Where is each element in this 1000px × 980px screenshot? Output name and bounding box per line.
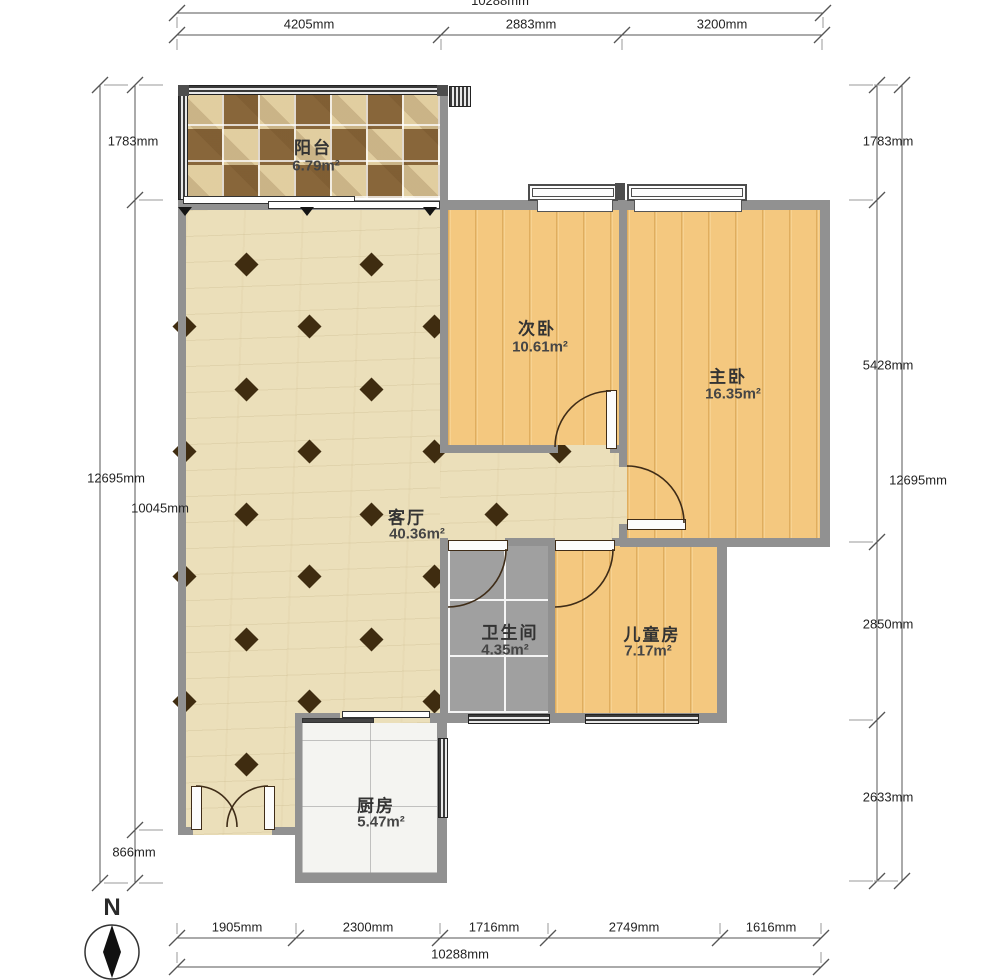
dim-left-seg-1: 1783mm — [108, 134, 159, 149]
second-bedroom-bay-window-inner — [532, 188, 614, 197]
wall-living-secondbed — [440, 200, 448, 453]
wall-secondbed-master-lower — [619, 524, 627, 546]
floor-diamond-accent — [234, 377, 258, 401]
balcony-top-railing-window — [178, 85, 448, 95]
dim-left-total: 12695mm — [87, 471, 145, 486]
slide-marker-right — [423, 207, 437, 216]
dim-left-inner: 10045mm — [131, 501, 189, 516]
kids-room-door-leaf — [555, 540, 615, 551]
dim-bottom-total: 10288mm — [431, 947, 489, 962]
balcony-label: 阳台 — [294, 134, 332, 159]
wall-bathroom-left — [440, 546, 448, 723]
wall-secondbed-master-upper — [619, 200, 627, 467]
entry-door-leaf-right — [264, 786, 275, 830]
dim-bottom-seg-2: 2300mm — [343, 920, 394, 935]
floor-diamond-accent — [484, 502, 508, 526]
wall-kidsroom-right — [717, 546, 727, 723]
living-room-area: 40.36m² — [389, 526, 445, 543]
north-arrow-label: N — [103, 894, 120, 922]
dim-right-seg-3: 2850mm — [863, 617, 914, 632]
floor-diamond-accent — [234, 252, 258, 276]
bathroom-door-leaf — [448, 540, 508, 551]
floor-diamond-accent — [297, 314, 321, 338]
balcony-sliding-door-panel-2 — [268, 201, 440, 209]
kitchen-sliding-door-panel-2 — [302, 718, 374, 723]
balcony-corner-post-left — [178, 85, 189, 96]
wall-secondbed-bottom-left — [440, 445, 558, 453]
wall-wet-top-b — [505, 538, 555, 546]
master-bedroom-door-leaf — [627, 519, 686, 530]
second-bedroom-label: 次卧 — [518, 315, 556, 340]
wall-left — [178, 200, 186, 835]
floor-diamond-accent — [297, 564, 321, 588]
balcony-left-railing-window — [178, 85, 188, 200]
ac-unit-platform — [449, 86, 471, 107]
dim-bottom-seg-3: 1716mm — [469, 920, 520, 935]
wall-balcony-right — [440, 85, 448, 200]
slide-marker-mid — [300, 207, 314, 216]
floor-diamond-accent — [359, 377, 383, 401]
master-bedroom-window-sill — [634, 199, 742, 212]
bay-window-divider — [615, 183, 625, 200]
floor-diamond-accent — [297, 439, 321, 463]
wall-right — [820, 200, 830, 547]
bathroom-area: 4.35m² — [481, 642, 529, 659]
dim-right-seg-2: 5428mm — [863, 358, 914, 373]
floor-diamond-accent — [359, 627, 383, 651]
floor-plan-canvas: 阳台 6.79m² 次卧 10.61m² 主卧 16.35m² 客厅 40.36… — [0, 0, 1000, 980]
wall-kitchen-left — [295, 713, 302, 883]
bathroom-label: 卫生间 — [482, 619, 539, 644]
floor-diamond-accent — [234, 627, 258, 651]
master-bedroom-label: 主卧 — [709, 363, 747, 388]
floor-diamond-accent — [234, 502, 258, 526]
wall-kitchen-bottom — [295, 873, 447, 883]
second-bedroom-window-sill — [537, 199, 613, 212]
wall-living-bottom-right — [272, 827, 302, 835]
kids-room-area: 7.17m² — [624, 643, 672, 660]
dim-right-seg-4: 2633mm — [863, 790, 914, 805]
master-bedroom-area: 16.35m² — [705, 386, 761, 403]
dim-bottom-seg-4: 2749mm — [609, 920, 660, 935]
floor-diamond-accent — [234, 752, 258, 776]
second-bedroom-area: 10.61m² — [512, 339, 568, 356]
slide-marker-left — [178, 207, 192, 216]
dim-top-total: 10288mm — [471, 0, 529, 8]
dim-bottom-seg-5: 1616mm — [746, 920, 797, 935]
master-bedroom-bay-window-inner — [631, 188, 743, 197]
kitchen-right-window — [438, 738, 448, 818]
wall-bathroom-kidsroom — [548, 546, 555, 713]
dim-top-seg-3: 3200mm — [697, 17, 748, 32]
kids-room-bottom-window — [585, 714, 699, 724]
dim-right-total: 12695mm — [889, 473, 947, 488]
bathroom-bottom-window — [468, 714, 550, 724]
dim-top-seg-2: 2883mm — [506, 17, 557, 32]
balcony-corner-post-right — [437, 85, 448, 96]
floor-diamond-accent — [359, 252, 383, 276]
dim-right-seg-1: 1783mm — [863, 134, 914, 149]
balcony-area: 6.79m² — [292, 158, 340, 175]
kitchen-area: 5.47m² — [357, 814, 405, 831]
floor-diamond-accent — [359, 502, 383, 526]
entry-door-leaf-left — [191, 786, 202, 830]
dim-top-seg-1: 4205mm — [284, 17, 335, 32]
second-bedroom-door-leaf — [606, 390, 617, 449]
floor-diamond-accent — [297, 689, 321, 713]
dim-bottom-seg-1: 1905mm — [212, 920, 263, 935]
kitchen-sliding-door-panel-1 — [342, 711, 430, 718]
dim-left-seg-3: 866mm — [112, 845, 155, 860]
